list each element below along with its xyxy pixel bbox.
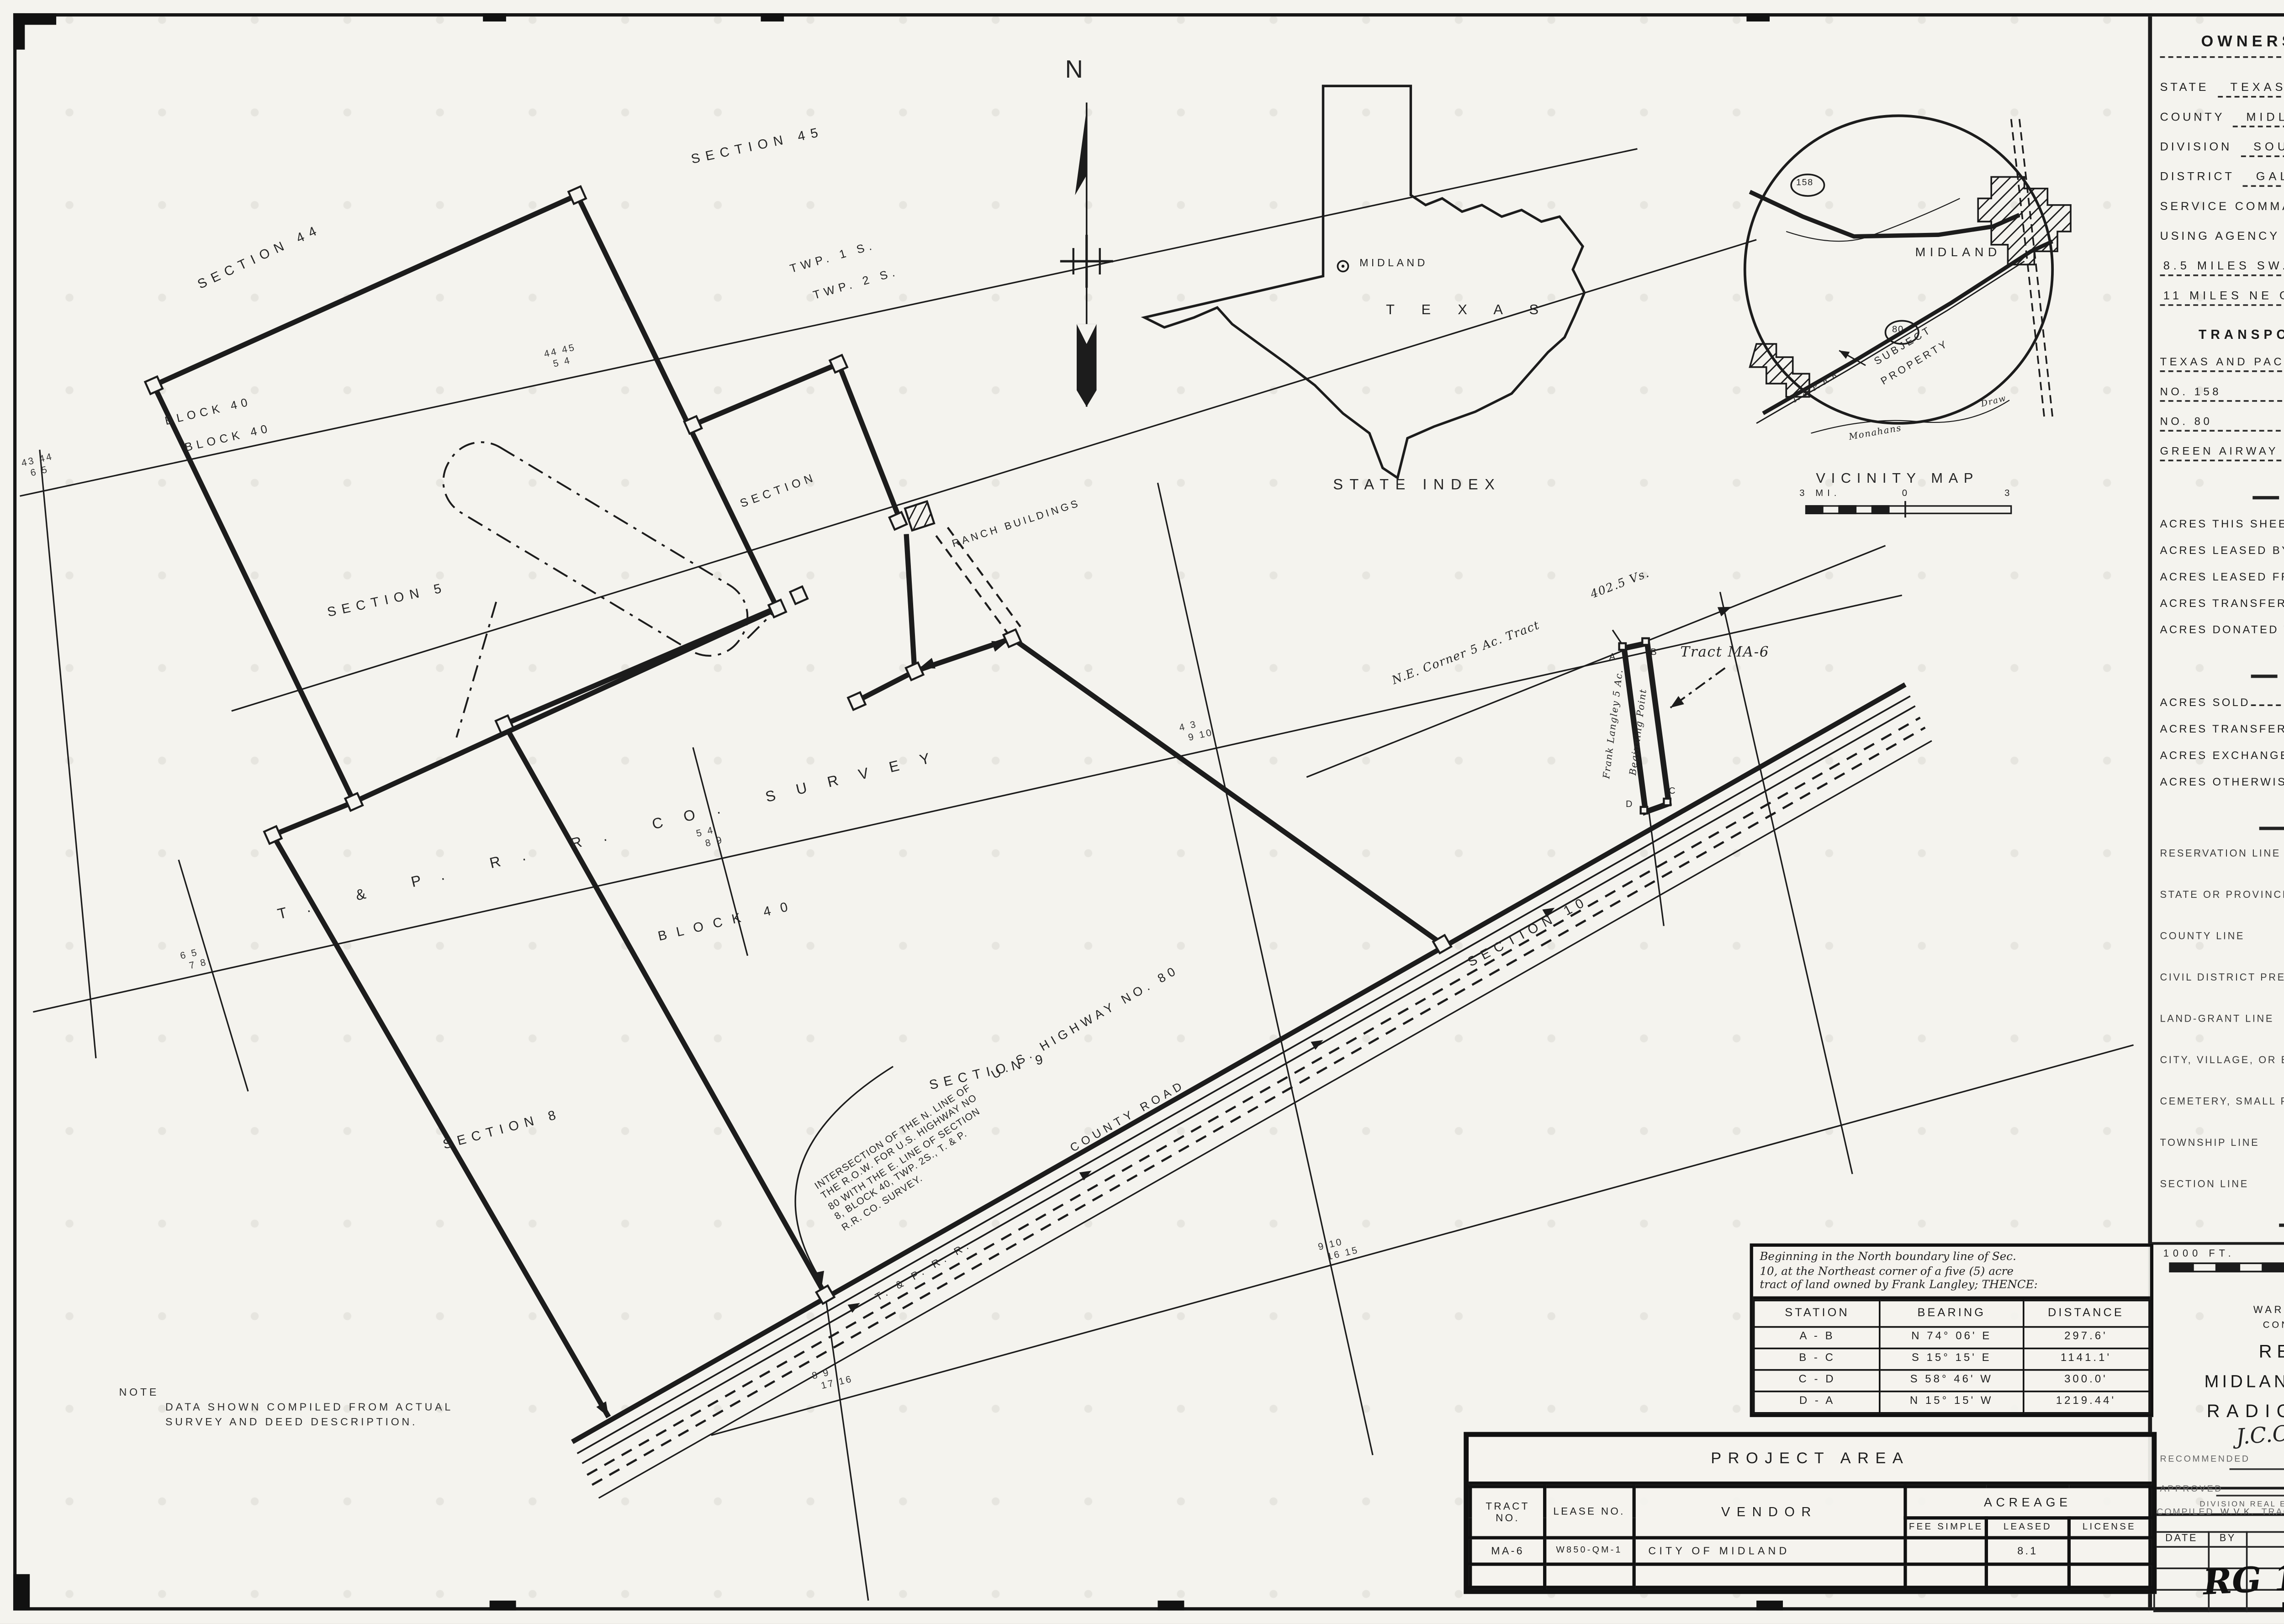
tract-boundaries: [154, 195, 1669, 1417]
field-district-value: GALVESTON: [2243, 172, 2284, 187]
title-midland-army-airfield: MIDLAND ARMY AIRFIELD: [2150, 1372, 2284, 1392]
state-index-caption: STATE INDEX: [1333, 476, 1501, 493]
tract-corner-b: B: [1650, 648, 1658, 658]
project-empty-row: [1470, 1564, 2150, 1587]
legend-section-line: SECTION LINE: [2160, 1181, 2249, 1191]
cell-tract-no: MA-6: [1470, 1538, 1545, 1564]
tract-corner-c: C: [1669, 787, 1677, 797]
field-division-label: DIVISION: [2160, 142, 2232, 153]
legend-county-line: COUNTY LINE: [2160, 933, 2245, 943]
legend-civil-district-line: CIVIL DISTRICT PRECINCT: [2160, 974, 2284, 984]
distance-da: 1219.44': [2023, 1391, 2149, 1413]
col-tract-no: TRACT NO.: [1470, 1487, 1545, 1538]
acres-sold-value: [2250, 703, 2284, 706]
vicinity-route-80: 80: [1892, 326, 1904, 336]
vicinity-scale-3: 3: [2004, 490, 2014, 500]
legend-state-line: STATE OR PROVINCE LINE: [2160, 891, 2284, 902]
field-distance-2: 11 MILES NE OF ODESSA: [2160, 291, 2284, 306]
legend-cemetery-line: CEMETERY, SMALL PARK ETC: [2160, 1098, 2284, 1108]
title-panel: OWNERSHIP - TRACT MAP (TYPE OF MAP) STAT…: [2150, 13, 2284, 1610]
scale-title: SCALE: [2150, 1220, 2284, 1232]
compiled-label: COMPILED: [2157, 1508, 2214, 1518]
officer-caption: DIVISION REAL ESTATE OFFICER: [2199, 1500, 2284, 1508]
bearing-da: N 15° 15' W: [1881, 1391, 2023, 1413]
acres-exchanged-label: ACRES EXCHANGED: [2160, 751, 2284, 762]
acres-otherwise-label: ACRES OTHERWISE: [2160, 777, 2284, 789]
station-bc: B - C: [1754, 1348, 1881, 1370]
description-intro-line3: tract of land owned by Frank Langley; TH…: [1760, 1278, 2143, 1292]
transport-railroad-value: TEXAS AND PACIFIC: [2160, 357, 2284, 372]
transport-federal-road-value: NO. 80: [2160, 417, 2284, 432]
traced-label: TRACED: [2262, 1508, 2284, 1518]
revisions-header-date: DATE: [2154, 1532, 2209, 1547]
bearing-cd: S 58° 46' W: [1881, 1370, 2023, 1391]
label-tract-ma6: Tract MA-6: [1681, 645, 1770, 661]
header-distance: DISTANCE: [2023, 1300, 2149, 1327]
course-row-bc: B - C S 15° 15' E 1141.1': [1754, 1348, 2149, 1370]
acres-transferred-to-label: ACRES TRANSFERRED TO W.D.: [2160, 599, 2284, 610]
ranch-lane: [936, 527, 1020, 635]
scale-1000ft: 1000 FT.: [2163, 1250, 2235, 1260]
runway-outline: [430, 429, 777, 738]
record-group-number: RG 121: [2202, 1554, 2284, 1603]
map-note-line2: SURVEY AND DEED DESCRIPTION.: [119, 1415, 453, 1430]
header-bearing: BEARING: [1881, 1300, 2023, 1327]
panel-title: OWNERSHIP - TRACT MAP: [2150, 33, 2284, 51]
recommended-line: [2230, 1468, 2284, 1470]
vicinity-scale-3mi: 3 MI.: [1799, 490, 1840, 500]
survey-arrows: [596, 602, 1733, 1420]
tract-corner-a: A: [1609, 653, 1617, 663]
map-note-title: NOTE: [119, 1386, 453, 1401]
texas-outline: [1144, 86, 1584, 478]
transport-state-road-value: NO. 158: [2160, 387, 2284, 402]
acres-leased-by-label: ACRES LEASED BY W.D.: [2160, 546, 2284, 557]
distance-cd: 300.0': [2023, 1370, 2149, 1391]
transportation-title: TRANSPORTATION FACILITIES: [2150, 327, 2284, 343]
state-index-texas: T E X A S: [1386, 301, 1550, 317]
distance-ab: 297.6': [2023, 1327, 2149, 1348]
revisions-header-by: BY: [2209, 1532, 2247, 1547]
cell-lease-no: W850-QM-1: [1545, 1538, 1633, 1564]
approved-label: APPROVED: [2160, 1485, 2223, 1495]
north-arrow: [1060, 102, 1113, 406]
col-acreage: ACREAGE: [1905, 1487, 2150, 1518]
course-row-ab: A - B N 74° 06' E 297.6': [1754, 1327, 2149, 1348]
description-intro-line2: 10, at the Northeast corner of a five (5…: [1760, 1264, 2143, 1278]
bearing-bc: S 15° 15' E: [1881, 1348, 2023, 1370]
field-state-value: TEXAS: [2217, 83, 2284, 98]
col-license: LICENSE: [2068, 1518, 2150, 1538]
transport-airline-value: GREEN AIRWAY NO. 5: [2160, 447, 2284, 462]
project-area-table: PROJECT AREA TRACT NO. LEASE NO. VENDOR …: [1464, 1432, 2157, 1594]
dept-line-2: CONSTRUCTION DIVISION: [2150, 1321, 2284, 1331]
description-header-row: STATION BEARING DISTANCE: [1754, 1300, 2149, 1327]
acres-donated-to-label: ACRES DONATED TO W.D.: [2160, 625, 2284, 637]
survey-description-table: Beginning in the North boundary line of …: [1750, 1244, 2153, 1417]
station-cd: C - D: [1754, 1370, 1881, 1391]
legend-title: LEGEND: [2150, 820, 2284, 835]
field-county-value: MIDLAND: [2233, 112, 2284, 127]
legend-land-grant-line: LAND-GRANT LINE: [2160, 1015, 2274, 1025]
station-da: D - A: [1754, 1391, 1881, 1413]
field-state-label: STATE: [2160, 83, 2209, 94]
map-note-line1: DATA SHOWN COMPILED FROM ACTUAL: [119, 1401, 453, 1416]
dept-line-1: WAR DEPARTMENT, O.C.E.: [2150, 1306, 2284, 1316]
field-distance-1: 8.5 MILES SW. OF MIDLAND: [2160, 261, 2284, 276]
credits-row: COMPILED W.V.K. TRACED J.S.K. CHECKED F.…: [2157, 1508, 2284, 1518]
vicinity-caption: VICINITY MAP: [1816, 469, 1979, 486]
col-lease-no: LEASE NO.: [1545, 1487, 1633, 1538]
description-intro-line1: Beginning in the North boundary line of …: [1760, 1250, 2143, 1264]
vicinity-midland: MIDLAND: [1915, 245, 2001, 260]
cell-fee-simple: [1905, 1538, 1987, 1564]
map-note: NOTE DATA SHOWN COMPILED FROM ACTUAL SUR…: [119, 1386, 453, 1430]
header-station: STATION: [1754, 1300, 1881, 1327]
title-radio-range-site: RADIO RANGE SITE: [2150, 1402, 2284, 1422]
ranch-buildings-symbol: [905, 501, 934, 531]
recommended-signature: J.C.Coryell: [2235, 1418, 2284, 1451]
cell-vendor: CITY OF MIDLAND: [1634, 1538, 1905, 1564]
course-row-da: D - A N 15° 15' W 1219.44': [1754, 1391, 2149, 1413]
tract-corner-d: D: [1626, 800, 1634, 810]
field-using-agency-label: USING AGENCY: [2160, 232, 2280, 243]
vicinity-scale-0: 0: [1902, 490, 1911, 500]
panel-subtitle: (TYPE OF MAP): [2150, 61, 2284, 69]
acres-transferred-label: ACRES TRANSFERRED: [2160, 724, 2284, 736]
project-area-title: PROJECT AREA: [1469, 1437, 2152, 1485]
state-index-midland: MIDLAND: [1359, 258, 1428, 269]
distance-bc: 1141.1': [2023, 1348, 2149, 1370]
acres-this-sheet-label: ACRES THIS SHEET: [2160, 519, 2284, 531]
col-vendor: VENDOR: [1634, 1487, 1905, 1538]
ownership-tract-map-sheet: SECTION 45 SECTION 44 TWP. 1 S. TWP. 2 S…: [0, 0, 2284, 1624]
field-county-label: COUNTY: [2160, 112, 2225, 124]
cell-license: [2068, 1538, 2150, 1564]
land-area-title: LAND AREA: [2150, 490, 2284, 505]
compiled-value: W.V.K.: [2221, 1508, 2255, 1518]
bearing-ab: N 74° 06' E: [1881, 1327, 2023, 1348]
course-row-cd: C - D S 58° 46' W 300.0': [1754, 1370, 2149, 1391]
acres-sold-label: ACRES SOLD: [2160, 698, 2250, 709]
station-ab: A - B: [1754, 1327, 1881, 1348]
vicinity-route-158: 158: [1796, 179, 1813, 189]
cell-leased: 8.1: [1987, 1538, 2069, 1564]
recommended-label: RECOMMENDED: [2160, 1455, 2250, 1465]
scanned-sheet-viewport: SECTION 45 SECTION 44 TWP. 1 S. TWP. 2 S…: [0, 0, 2284, 1624]
col-leased: LEASED: [1987, 1518, 2069, 1538]
field-district-label: DISTRICT: [2160, 172, 2235, 184]
col-fee-simple: FEE SIMPLE: [1905, 1518, 1987, 1538]
approved-line: [2216, 1495, 2284, 1497]
revisions-header-revisions: REVISIONS: [2247, 1532, 2284, 1547]
legend-city-village-line: CITY, VILLAGE, OR BOROUGH: [2160, 1057, 2284, 1067]
north-arrow-n: N: [1065, 56, 1083, 84]
field-service-command-label: SERVICE COMMAND: [2160, 202, 2284, 213]
vicinity-map-graphic: [1745, 116, 2071, 517]
disposals-title: DISPOSALS: [2150, 668, 2284, 683]
acres-leased-from-label: ACRES LEASED FROM W.D.: [2160, 572, 2284, 584]
panel-title-rule: [2160, 56, 2284, 58]
title-real-estate: REAL ESTATE: [2150, 1343, 2284, 1362]
description-intro: Beginning in the North boundary line of …: [1753, 1247, 2150, 1299]
legend-township-line: TOWNSHIP LINE: [2160, 1139, 2260, 1149]
field-division-value: SOUTHWESTERN: [2240, 142, 2284, 157]
legend-reservation-line: RESERVATION LINE: [2160, 850, 2281, 860]
